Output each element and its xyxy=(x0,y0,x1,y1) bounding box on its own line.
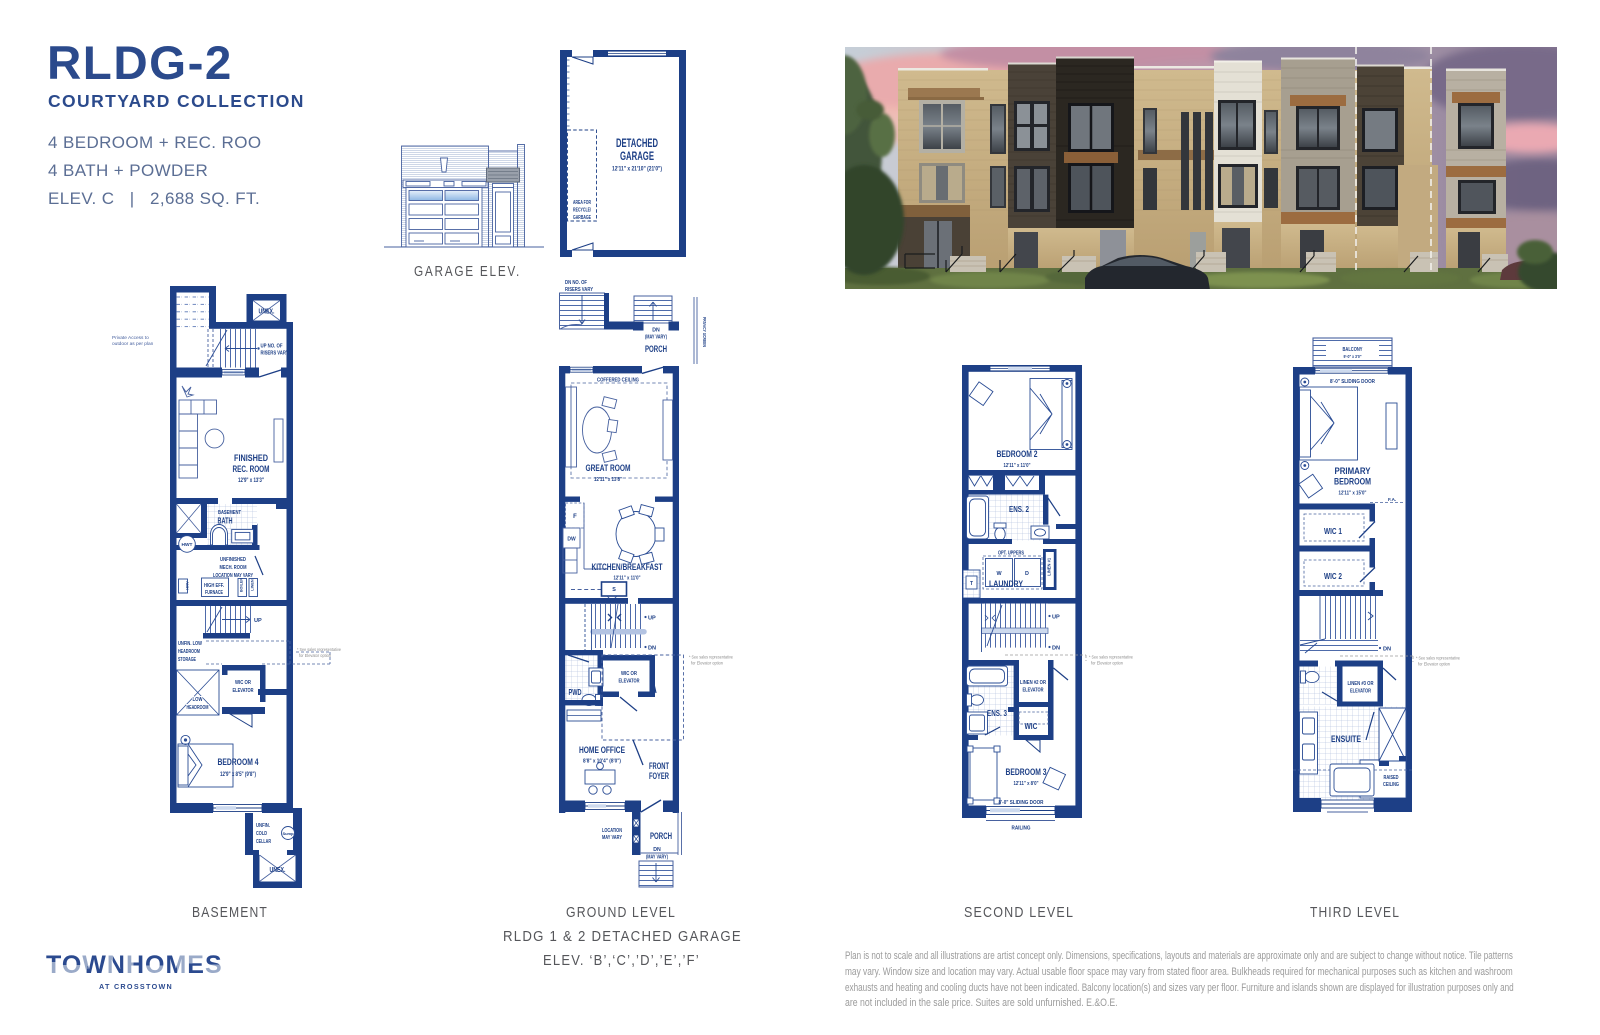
svg-text:PRIMARY: PRIMARY xyxy=(1335,466,1371,476)
svg-text:* See sales representative: * See sales representative xyxy=(1089,655,1133,660)
svg-text:DN NO. OF: DN NO. OF xyxy=(565,280,587,286)
svg-text:BALCONY: BALCONY xyxy=(1343,347,1363,353)
svg-text:DN: DN xyxy=(652,328,660,334)
svg-text:WIC OR: WIC OR xyxy=(621,671,637,677)
svg-text:F.A.: F.A. xyxy=(1388,497,1396,502)
svg-text:* See sales representative: * See sales representative xyxy=(1416,656,1460,661)
svg-text:DETACHED: DETACHED xyxy=(616,138,658,150)
svg-text:DN: DN xyxy=(1052,646,1060,652)
svg-text:8'-0" SLIDING DOOR: 8'-0" SLIDING DOOR xyxy=(999,800,1044,806)
svg-text:KITCHEN/BREAKFAST: KITCHEN/BREAKFAST xyxy=(592,562,663,572)
svg-text:12'11" x 11'0": 12'11" x 11'0" xyxy=(614,576,641,582)
svg-text:FRONT: FRONT xyxy=(649,761,669,771)
svg-text:COFFERED CEILING: COFFERED CEILING xyxy=(597,378,639,384)
svg-text:S: S xyxy=(612,587,616,593)
svg-text:DN: DN xyxy=(648,646,656,652)
svg-text:GARBAGE: GARBAGE xyxy=(573,215,591,221)
svg-text:FURNACE: FURNACE xyxy=(205,590,223,596)
svg-text:(MAY VARY): (MAY VARY) xyxy=(646,855,668,861)
svg-text:RISERS VARY: RISERS VARY xyxy=(261,351,289,357)
svg-text:12'11" x 21'10" (21'0"): 12'11" x 21'10" (21'0") xyxy=(612,166,662,173)
svg-text:MAY VARY: MAY VARY xyxy=(602,835,622,841)
svg-text:for Elevator option: for Elevator option xyxy=(299,653,331,658)
svg-text:ELEVATOR: ELEVATOR xyxy=(619,679,640,685)
svg-text:LINEN #1: LINEN #1 xyxy=(1046,557,1051,576)
svg-text:UP NO. OF: UP NO. OF xyxy=(261,344,283,350)
svg-text:UP: UP xyxy=(648,616,656,622)
svg-text:PWD: PWD xyxy=(569,687,582,697)
svg-text:RISERS VARY: RISERS VARY xyxy=(565,287,593,293)
svg-text:AREA FOR: AREA FOR xyxy=(573,200,591,206)
svg-text:LINEN #3 OR: LINEN #3 OR xyxy=(1348,681,1374,687)
svg-text:for Elevator option: for Elevator option xyxy=(691,661,723,666)
svg-text:12'11" x 15'0": 12'11" x 15'0" xyxy=(1339,491,1367,497)
svg-text:HWT: HWT xyxy=(182,542,193,548)
svg-text:12'11" x 13'8": 12'11" x 13'8" xyxy=(594,477,622,483)
svg-text:8'-0" SLIDING DOOR: 8'-0" SLIDING DOOR xyxy=(1330,379,1375,385)
svg-text:Private Access to: Private Access to xyxy=(112,335,149,341)
svg-text:T: T xyxy=(970,581,973,587)
svg-text:HEADROOM: HEADROOM xyxy=(187,705,209,711)
svg-text:ENS. 2: ENS. 2 xyxy=(1009,505,1030,514)
svg-text:UP: UP xyxy=(254,618,262,624)
svg-text:UNEX.: UNEX. xyxy=(259,309,275,316)
svg-text:ELEVATOR: ELEVATOR xyxy=(233,688,254,694)
svg-text:UNEX.: UNEX. xyxy=(270,867,286,874)
svg-text:DN: DN xyxy=(1383,647,1391,653)
svg-text:FOYER: FOYER xyxy=(649,771,669,781)
svg-text:WIC 1: WIC 1 xyxy=(1324,527,1343,536)
svg-text:RAISED: RAISED xyxy=(1384,775,1399,781)
svg-text:ELEVATOR: ELEVATOR xyxy=(1023,688,1044,694)
svg-text:STORAGE: STORAGE xyxy=(178,657,196,663)
svg-text:BEDROOM 3: BEDROOM 3 xyxy=(1006,767,1047,777)
svg-text:W: W xyxy=(996,571,1002,577)
svg-text:12'9" x 13'3": 12'9" x 13'3" xyxy=(238,478,264,484)
svg-text:Sump: Sump xyxy=(282,831,294,836)
svg-text:UNFINISHED: UNFINISHED xyxy=(220,557,246,563)
svg-text:CELLAR: CELLAR xyxy=(256,839,271,845)
svg-text:LAUNDRY: LAUNDRY xyxy=(989,579,1023,589)
svg-text:WIC: WIC xyxy=(1025,722,1038,731)
svg-text:* See sales representative: * See sales representative xyxy=(297,647,341,652)
svg-text:FINISHED: FINISHED xyxy=(234,453,268,464)
svg-text:BATH: BATH xyxy=(218,516,233,526)
svg-text:PORCH: PORCH xyxy=(650,831,672,841)
svg-text:UP: UP xyxy=(1052,615,1060,621)
svg-text:12'11" x 8'0": 12'11" x 8'0" xyxy=(1014,781,1039,787)
svg-text:HOME OFFICE: HOME OFFICE xyxy=(579,745,625,755)
svg-text:BEDROOM 2: BEDROOM 2 xyxy=(997,449,1038,459)
svg-text:LOW: LOW xyxy=(193,697,204,703)
svg-text:LOCATION: LOCATION xyxy=(602,828,622,834)
svg-text:BEDROOM 4: BEDROOM 4 xyxy=(218,757,259,767)
svg-text:12'11" x 11'0": 12'11" x 11'0" xyxy=(1004,463,1031,469)
svg-text:DW: DW xyxy=(567,537,576,543)
svg-text:for Elevator option: for Elevator option xyxy=(1418,662,1450,667)
svg-text:(MAY VARY): (MAY VARY) xyxy=(645,335,667,341)
svg-text:PRIVACY SCREEN: PRIVACY SCREEN xyxy=(702,317,707,347)
svg-text:9'-0" x 3'0": 9'-0" x 3'0" xyxy=(1344,354,1362,360)
svg-text:UNFIN.: UNFIN. xyxy=(256,823,270,829)
svg-text:LINEN #2 OR: LINEN #2 OR xyxy=(1020,680,1046,686)
svg-text:F: F xyxy=(573,514,577,520)
svg-text:LINEN: LINEN xyxy=(251,579,255,591)
svg-text:REC. ROOM: REC. ROOM xyxy=(233,464,270,475)
svg-text:BEDROOM: BEDROOM xyxy=(1334,477,1371,487)
svg-text:DN: DN xyxy=(653,847,661,853)
svg-text:for Elevator option: for Elevator option xyxy=(1091,661,1123,666)
svg-text:HIGH EFF.: HIGH EFF. xyxy=(204,583,224,589)
svg-text:ENSUITE: ENSUITE xyxy=(1331,733,1361,744)
svg-text:COLD: COLD xyxy=(256,831,267,837)
svg-text:outdoor as per plan: outdoor as per plan xyxy=(112,341,154,347)
svg-text:RAILING: RAILING xyxy=(1012,826,1031,832)
svg-text:HEADROOM: HEADROOM xyxy=(178,649,200,655)
svg-text:ENS. 3: ENS. 3 xyxy=(987,709,1008,718)
svg-text:PORCH: PORCH xyxy=(645,344,667,354)
svg-text:* See sales representative: * See sales representative xyxy=(689,655,733,660)
svg-text:HRV: HRV xyxy=(185,581,190,590)
svg-text:12'9" x 8'5" (9'8"): 12'9" x 8'5" (9'8") xyxy=(220,772,256,778)
svg-text:BOILER: BOILER xyxy=(240,578,244,593)
svg-text:RECYCLE/: RECYCLE/ xyxy=(573,208,591,214)
svg-text:GARAGE: GARAGE xyxy=(620,151,654,163)
svg-text:MECH. ROOM: MECH. ROOM xyxy=(220,565,247,571)
svg-text:UNFIN. LOW: UNFIN. LOW xyxy=(178,641,203,647)
svg-text:WIC OR: WIC OR xyxy=(235,680,251,686)
svg-text:WIC 2: WIC 2 xyxy=(1324,572,1343,581)
svg-text:ELEVATOR: ELEVATOR xyxy=(1350,689,1371,695)
svg-text:D: D xyxy=(1025,571,1029,577)
svg-text:CEILING: CEILING xyxy=(1383,782,1399,788)
svg-text:GREAT ROOM: GREAT ROOM xyxy=(586,462,631,473)
